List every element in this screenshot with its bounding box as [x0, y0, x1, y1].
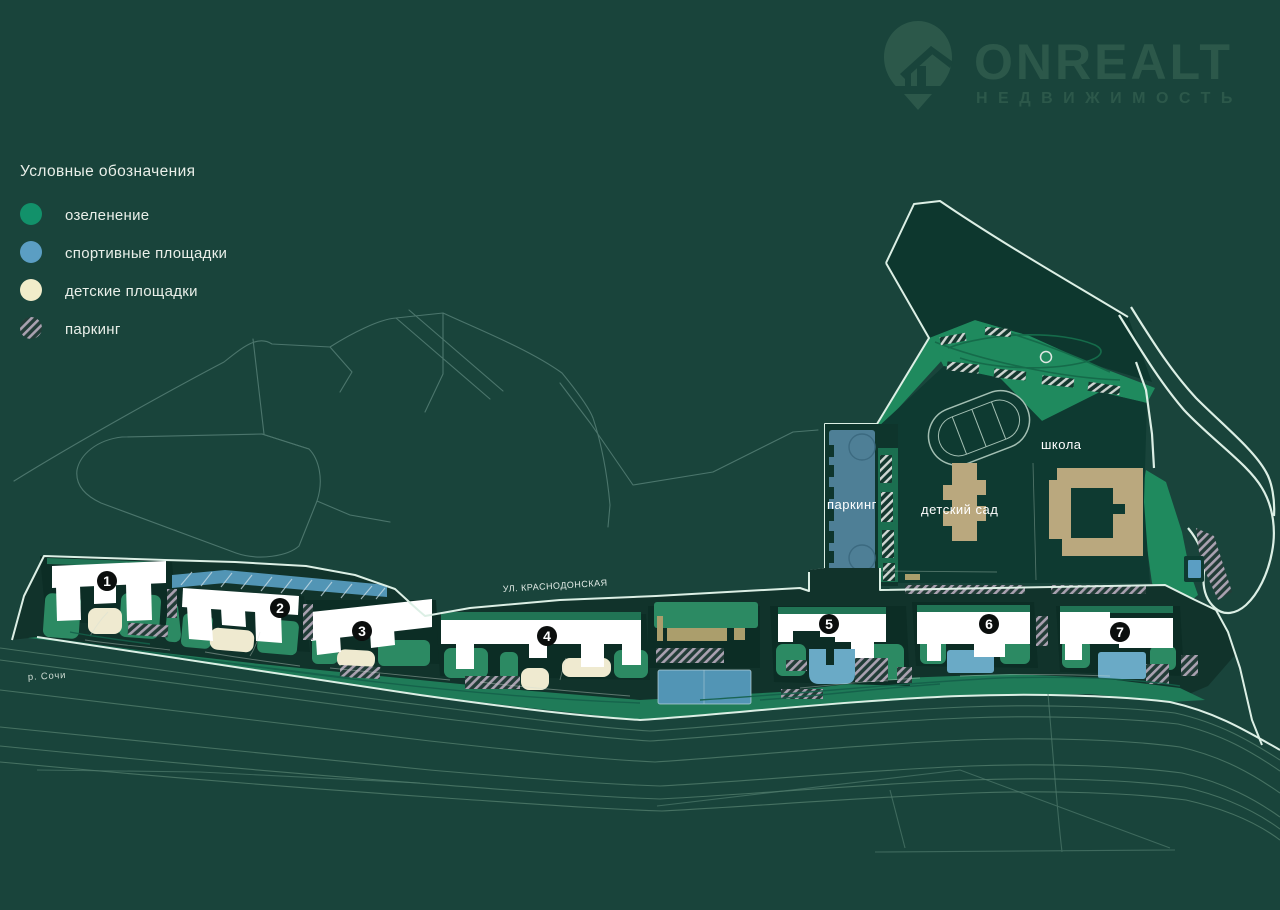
svg-text:детский сад: детский сад: [921, 502, 998, 517]
svg-text:5: 5: [825, 616, 833, 632]
svg-text:Условные обозначения: Условные обозначения: [20, 163, 195, 180]
svg-text:детские площадки: детские площадки: [65, 283, 198, 300]
svg-text:6: 6: [985, 616, 993, 632]
svg-text:1: 1: [103, 573, 111, 589]
svg-text:НЕДВИЖИМОСТЬ: НЕДВИЖИМОСТЬ: [976, 90, 1243, 107]
svg-text:ONREALT: ONREALT: [974, 34, 1233, 90]
svg-text:4: 4: [543, 628, 551, 644]
svg-text:школа: школа: [1041, 437, 1082, 452]
svg-text:паркинг: паркинг: [827, 497, 877, 512]
svg-text:7: 7: [1116, 624, 1124, 640]
svg-text:спортивные площадки: спортивные площадки: [65, 245, 227, 262]
svg-text:паркинг: паркинг: [65, 321, 121, 338]
svg-text:3: 3: [358, 623, 366, 639]
svg-text:2: 2: [276, 600, 284, 616]
svg-text:р. Сочи: р. Сочи: [28, 670, 67, 683]
svg-text:озеленение: озеленение: [65, 207, 149, 224]
